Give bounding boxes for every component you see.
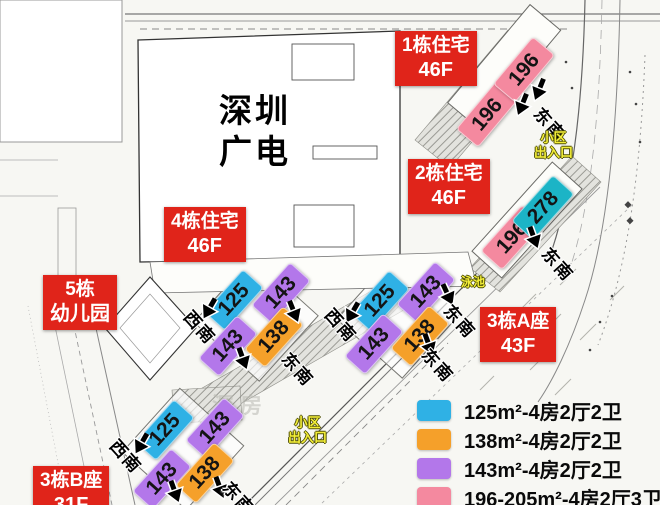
building-floors: 46F <box>171 234 239 259</box>
building-floors: 46F <box>415 186 483 211</box>
building-name: 3栋B座 <box>40 469 102 493</box>
building-name: 2栋住宅 <box>415 162 483 186</box>
legend-swatch-196 <box>417 487 451 505</box>
building-label-3b: 3栋B座 31F <box>33 466 109 505</box>
legend-item: 138m²-4房2厅2卫 <box>417 425 622 454</box>
legend-label: 143m²-4房2厅2卫 <box>464 454 622 483</box>
entrance-label-line1: 小区 <box>288 416 327 431</box>
legend-swatch-125 <box>417 400 451 421</box>
pool-label: 泳池 <box>461 276 485 290</box>
building-name: 1栋住宅 <box>402 34 470 58</box>
legend-item: 196-205m²-4房2厅3卫 <box>417 483 660 505</box>
building-label-1: 1栋住宅 46F <box>395 31 477 86</box>
legend-label: 196-205m²-4房2厅3卫 <box>464 483 660 505</box>
campus-name-line1: 深圳 <box>192 90 318 131</box>
building-label-5: 5栋 幼儿园 <box>43 275 117 330</box>
building-floors: 幼儿园 <box>50 302 110 327</box>
entrance-label: 小区 出入口 <box>288 416 327 446</box>
entrance-label-line1: 小区 <box>534 131 573 146</box>
legend-swatch-143 <box>417 458 451 479</box>
legend-swatch-138 <box>417 429 451 450</box>
legend-label: 138m²-4房2厅2卫 <box>464 425 622 454</box>
site-plan: 深房 深圳 广电 196 196 196 278 125 143 143 138… <box>0 0 660 505</box>
building-floors: 46F <box>402 58 470 83</box>
building-name: 5栋 <box>50 278 110 302</box>
building-name: 4栋住宅 <box>171 210 239 234</box>
campus-name-line2: 广电 <box>192 131 318 172</box>
legend-item: 125m²-4房2厅2卫 <box>417 396 622 425</box>
legend-item: 143m²-4房2厅2卫 <box>417 454 622 483</box>
entrance-label-line2: 出入口 <box>534 146 573 161</box>
legend-label: 125m²-4房2厅2卫 <box>464 396 622 425</box>
building-floors: 31F <box>40 493 102 505</box>
building-label-4: 4栋住宅 46F <box>164 207 246 262</box>
building-label-3a: 3栋A座 43F <box>480 307 556 362</box>
entrance-label-line2: 出入口 <box>288 431 327 446</box>
entrance-label: 小区 出入口 <box>534 131 573 161</box>
building-name: 3栋A座 <box>487 310 549 334</box>
building-label-2: 2栋住宅 46F <box>408 159 490 214</box>
building-floors: 43F <box>487 334 549 359</box>
campus-name: 深圳 广电 <box>192 90 318 173</box>
